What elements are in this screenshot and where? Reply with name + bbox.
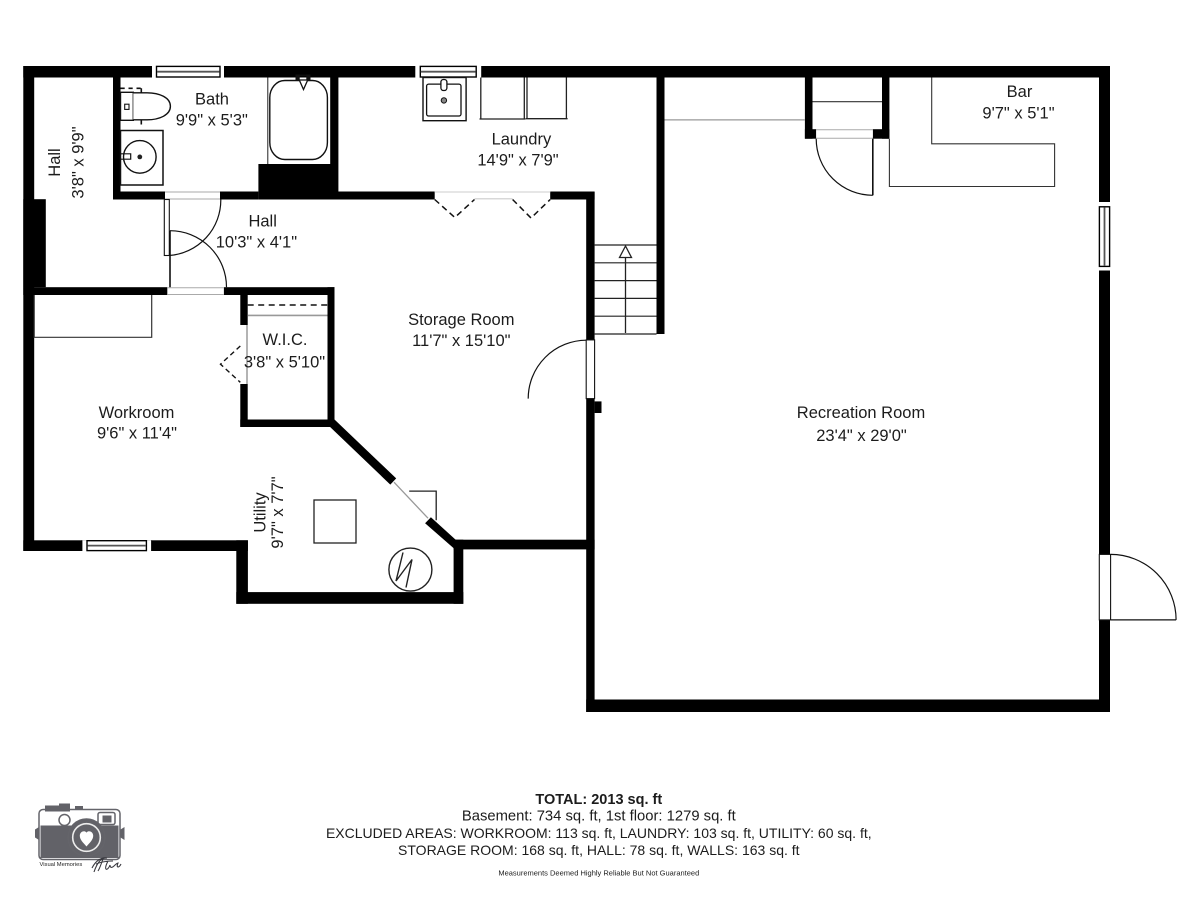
svg-text:Visual Memories: Visual Memories <box>40 862 83 868</box>
svg-text:Hall: Hall <box>46 148 64 176</box>
svg-text:Basement: 734 sq. ft, 1st floo: Basement: 734 sq. ft, 1st floor: 1279 sq… <box>462 809 736 825</box>
svg-text:9'6" x 11'4": 9'6" x 11'4" <box>97 425 177 443</box>
svg-text:9'7" x 7'7": 9'7" x 7'7" <box>269 476 287 548</box>
svg-text:3'8" x 9'9": 3'8" x 9'9" <box>70 126 88 198</box>
svg-text:Workroom: Workroom <box>99 404 175 422</box>
svg-text:Laundry: Laundry <box>492 131 552 149</box>
svg-text:EXCLUDED AREAS: WORKROOM: 113: EXCLUDED AREAS: WORKROOM: 113 sq. ft, LA… <box>326 825 872 841</box>
svg-text:Measurements Deemed Highly Rel: Measurements Deemed Highly Reliable But … <box>498 869 699 878</box>
svg-text:9'9" x 5'3": 9'9" x 5'3" <box>176 112 248 130</box>
svg-text:Recreation Room: Recreation Room <box>797 404 925 422</box>
svg-text:14'9" x 7'9": 14'9" x 7'9" <box>477 152 558 170</box>
svg-text:Storage Room: Storage Room <box>408 311 514 329</box>
svg-text:Bar: Bar <box>1007 83 1033 101</box>
svg-text:10'3" x 4'1": 10'3" x 4'1" <box>216 234 297 252</box>
svg-text:W.I.C.: W.I.C. <box>263 331 308 349</box>
svg-text:Utility: Utility <box>252 492 270 533</box>
svg-text:STORAGE ROOM: 168 sq. ft, HALL: STORAGE ROOM: 168 sq. ft, HALL: 78 sq. f… <box>398 842 800 858</box>
svg-text:Bath: Bath <box>195 91 229 109</box>
svg-text:3'8" x 5'10": 3'8" x 5'10" <box>244 354 325 372</box>
svg-text:9'7" x 5'1": 9'7" x 5'1" <box>982 105 1054 123</box>
svg-text:Hall: Hall <box>248 213 276 231</box>
svg-text:23'4" x 29'0": 23'4" x 29'0" <box>816 427 907 445</box>
svg-text:TOTAL: 2013 sq. ft: TOTAL: 2013 sq. ft <box>535 792 662 808</box>
svg-text:11'7" x 15'10": 11'7" x 15'10" <box>412 332 511 350</box>
